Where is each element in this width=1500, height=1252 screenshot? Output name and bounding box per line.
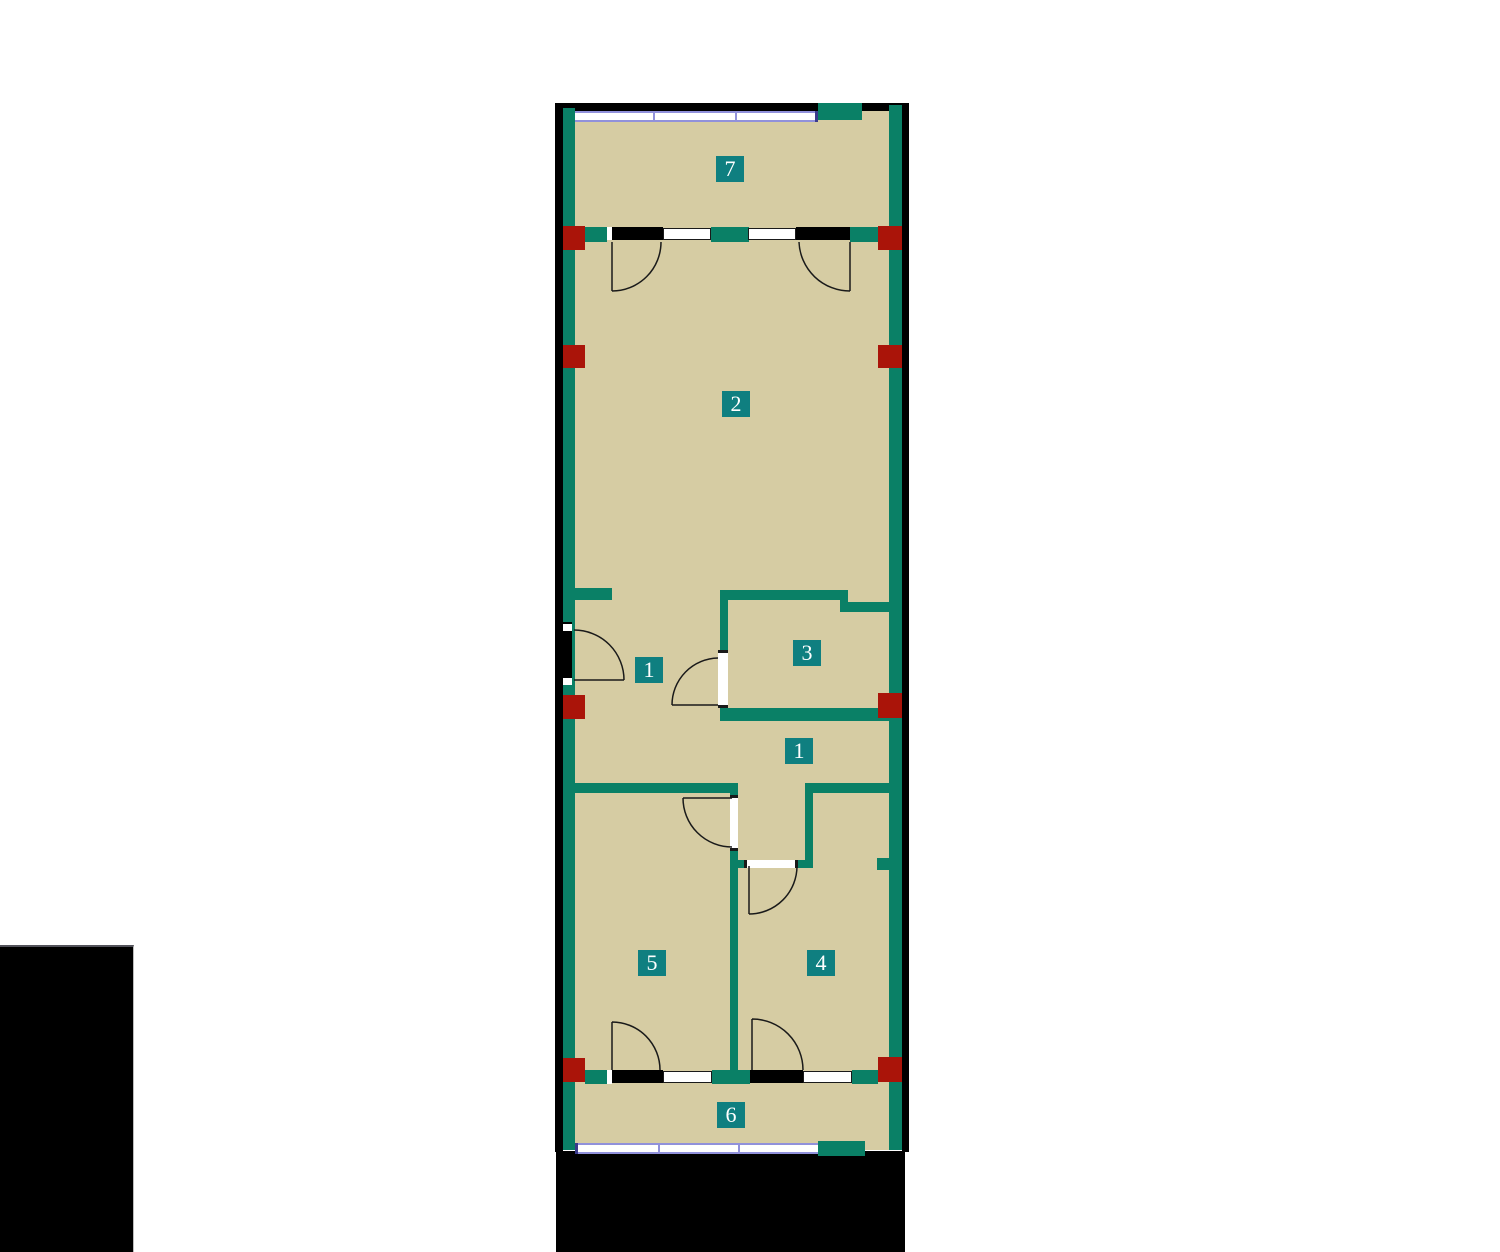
door-swing [612, 242, 661, 291]
room-label-1-upper: 1 [635, 657, 663, 683]
floor-plan-canvas: 7 2 1 3 1 5 4 6 [0, 0, 1500, 1252]
room-label-5: 5 [638, 950, 666, 976]
door-swings-layer [0, 0, 1500, 1252]
door-swing [683, 798, 732, 847]
room-label-1-lower: 1 [785, 738, 813, 764]
door-swing [749, 866, 797, 914]
door-swing [612, 1022, 660, 1070]
room-label-2: 2 [722, 391, 750, 417]
room-label-7: 7 [716, 156, 744, 182]
door-swing [752, 1019, 803, 1070]
door-swing [672, 658, 718, 705]
door-swing [574, 630, 624, 680]
door-swing [799, 242, 850, 291]
room-label-6: 6 [717, 1102, 745, 1128]
room-label-4: 4 [807, 950, 835, 976]
room-label-3: 3 [793, 640, 821, 666]
